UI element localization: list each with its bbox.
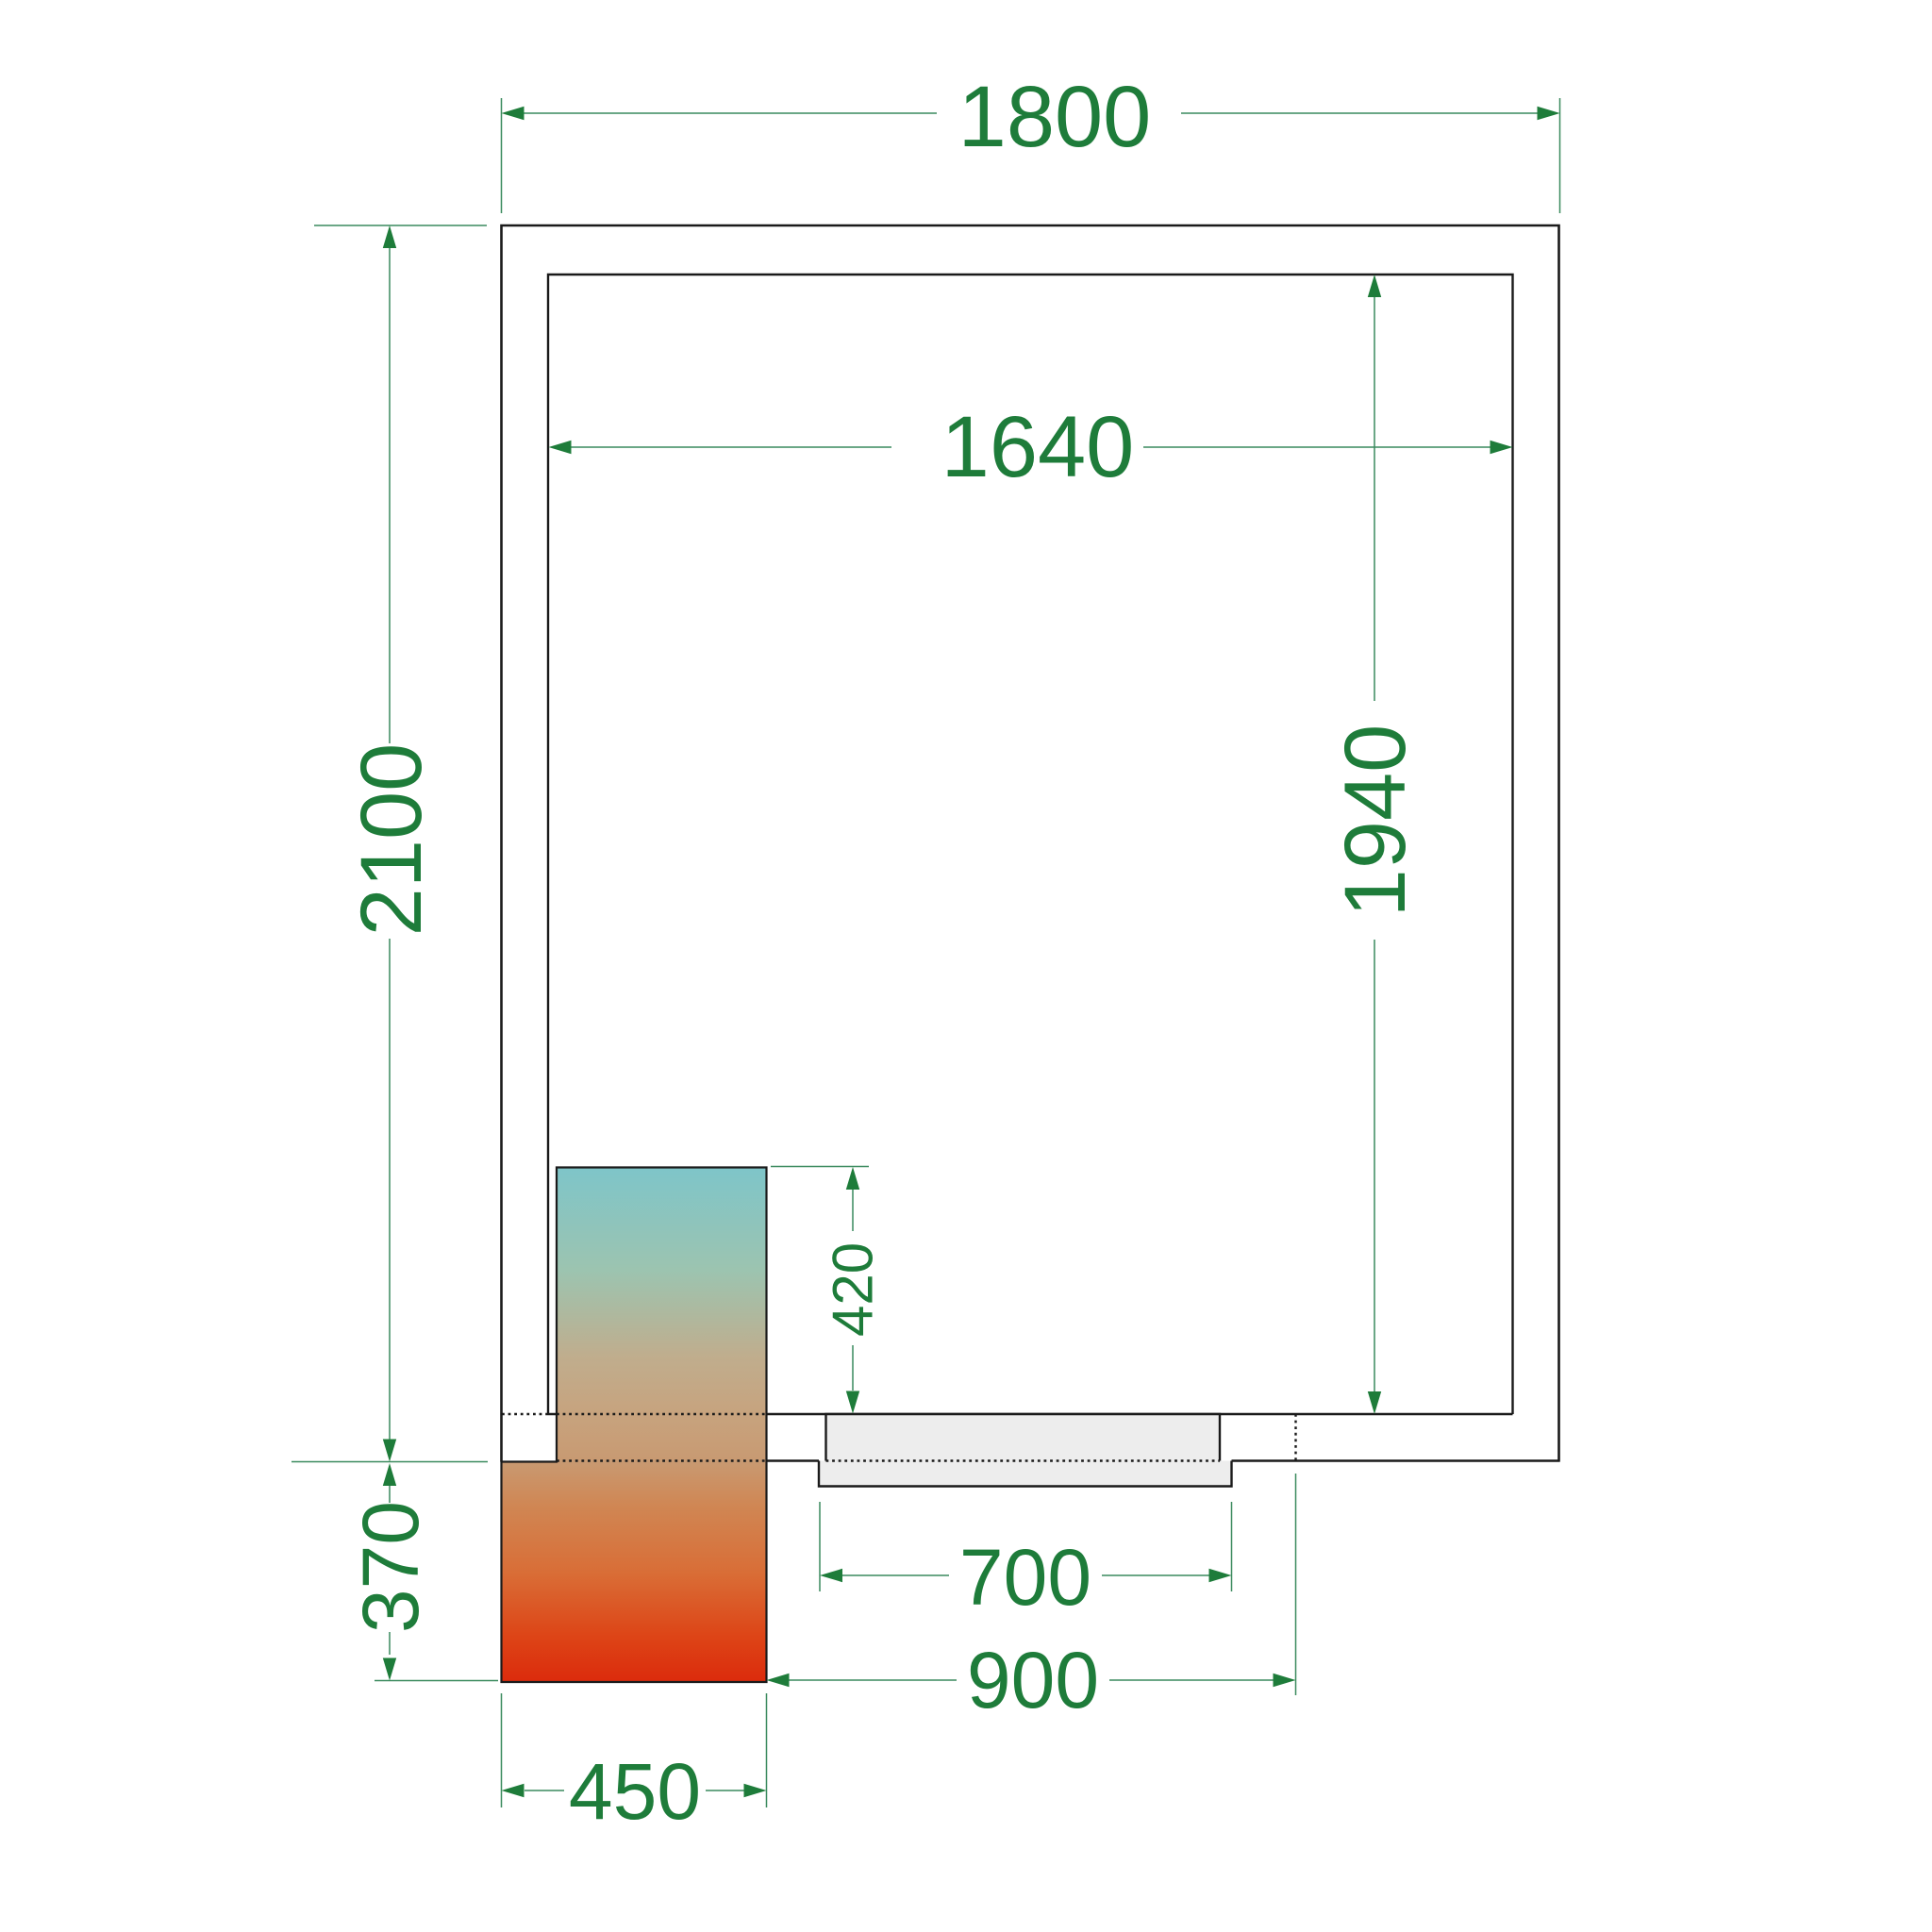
svg-text:420: 420	[822, 1242, 885, 1337]
svg-text:700: 700	[959, 1533, 1091, 1622]
svg-text:2100: 2100	[343, 743, 440, 937]
svg-text:370: 370	[346, 1501, 435, 1633]
svg-text:450: 450	[569, 1747, 701, 1836]
svg-text:1940: 1940	[1327, 724, 1424, 918]
svg-text:900: 900	[967, 1636, 1099, 1724]
svg-text:1800: 1800	[958, 69, 1152, 165]
svg-text:1640: 1640	[941, 399, 1135, 495]
